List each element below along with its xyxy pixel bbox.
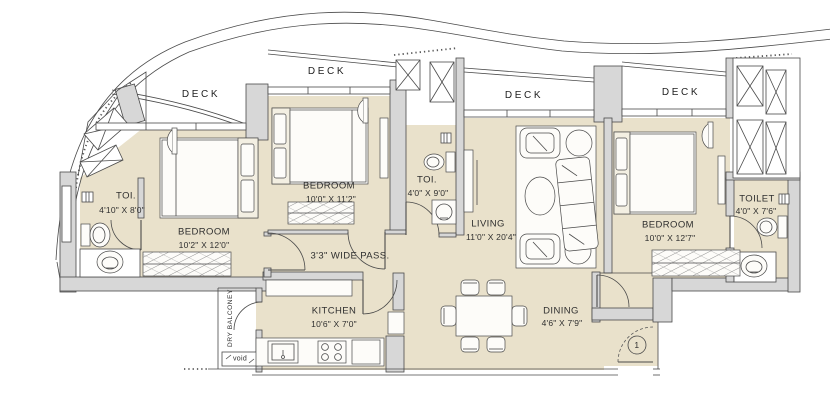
dry-balcony-label: DRY BALCONEY bbox=[228, 289, 235, 347]
deck-label-3: DECK bbox=[505, 91, 543, 101]
pillow-icon bbox=[241, 180, 254, 212]
chair-icon bbox=[512, 306, 527, 326]
toilet2-label: TOI. bbox=[417, 175, 437, 185]
bedroom1-label: BEDROOM bbox=[178, 227, 230, 237]
wc-icon bbox=[81, 224, 90, 246]
deck-label-2: DECK bbox=[308, 67, 346, 77]
toilet2-dims: 4'0" X 9'0" bbox=[408, 189, 449, 198]
coffee-table-icon bbox=[525, 177, 555, 215]
pillow-icon bbox=[616, 174, 627, 206]
kitchen-platform bbox=[266, 280, 352, 296]
window-bedroom1 bbox=[96, 123, 246, 130]
tv-unit-icon bbox=[464, 150, 473, 212]
entry-door-number: 1 bbox=[634, 341, 639, 350]
hob-icon bbox=[318, 341, 346, 363]
pillow-icon bbox=[241, 144, 254, 176]
dining-table-icon bbox=[456, 296, 512, 336]
geyser-icon bbox=[779, 194, 789, 204]
chair-icon bbox=[461, 280, 479, 295]
console-icon bbox=[380, 118, 388, 178]
bedroom1-dims: 10'2" X 12'0" bbox=[179, 241, 230, 250]
side-table-icon bbox=[566, 130, 592, 156]
kitchen-dims: 10'6" X 7'0" bbox=[311, 320, 357, 329]
basin-icon bbox=[741, 255, 767, 277]
bedroom2-label: BEDROOM bbox=[303, 181, 355, 191]
geyser-icon bbox=[82, 192, 93, 202]
pillow-icon bbox=[616, 138, 627, 170]
floor-plan: DECK DECK DECK DECK TOI. 4'10" X 8'0" BE… bbox=[0, 0, 830, 412]
deck-label-4: DECK bbox=[662, 88, 700, 98]
passage-label: 3'3" WIDE PASS. bbox=[310, 251, 389, 261]
chair-icon bbox=[487, 280, 505, 295]
window-bedroom2 bbox=[268, 87, 390, 94]
dining-dims: 4'6" X 7'9" bbox=[542, 319, 583, 328]
dining-label: DINING bbox=[543, 306, 579, 316]
toilet1-dims: 4'10" X 8'0" bbox=[99, 206, 145, 215]
console-icon bbox=[718, 156, 725, 204]
kitchen-label: KITCHEN bbox=[312, 306, 357, 316]
wc-icon bbox=[778, 216, 787, 238]
dresser-icon bbox=[363, 98, 368, 123]
bedroom3-dims: 10'0" X 12'7" bbox=[645, 234, 696, 243]
chair-icon bbox=[461, 337, 479, 352]
chair-icon bbox=[441, 306, 456, 326]
dresser-icon bbox=[172, 128, 177, 154]
bedroom3-label: BEDROOM bbox=[642, 220, 694, 230]
railing-dots-right bbox=[736, 54, 792, 58]
living-dims: 11'0" X 20'4" bbox=[466, 233, 516, 242]
geyser-icon bbox=[441, 133, 451, 143]
basin-icon bbox=[97, 251, 123, 273]
fridge-icon bbox=[388, 312, 404, 334]
deck-label-1: DECK bbox=[182, 90, 220, 100]
window-bedroom3 bbox=[622, 109, 726, 116]
toilet3-label: TOILET bbox=[739, 194, 774, 204]
pillow-icon bbox=[274, 114, 286, 144]
wc-icon bbox=[446, 152, 455, 172]
toilet3-dims: 4'0" X 7'6" bbox=[736, 207, 777, 216]
bedroom2-dims: 10'0" X 11'2" bbox=[306, 195, 356, 204]
railing-dots-mid bbox=[394, 48, 458, 55]
living-label: LIVING bbox=[471, 219, 505, 229]
toilet1-label: TOI. bbox=[116, 191, 136, 201]
window-living bbox=[464, 110, 594, 117]
pillow-icon bbox=[274, 148, 286, 178]
chair-icon bbox=[487, 337, 505, 352]
dresser-icon bbox=[708, 122, 713, 148]
window-toilet1 bbox=[62, 186, 71, 242]
void-label: void bbox=[233, 356, 247, 363]
